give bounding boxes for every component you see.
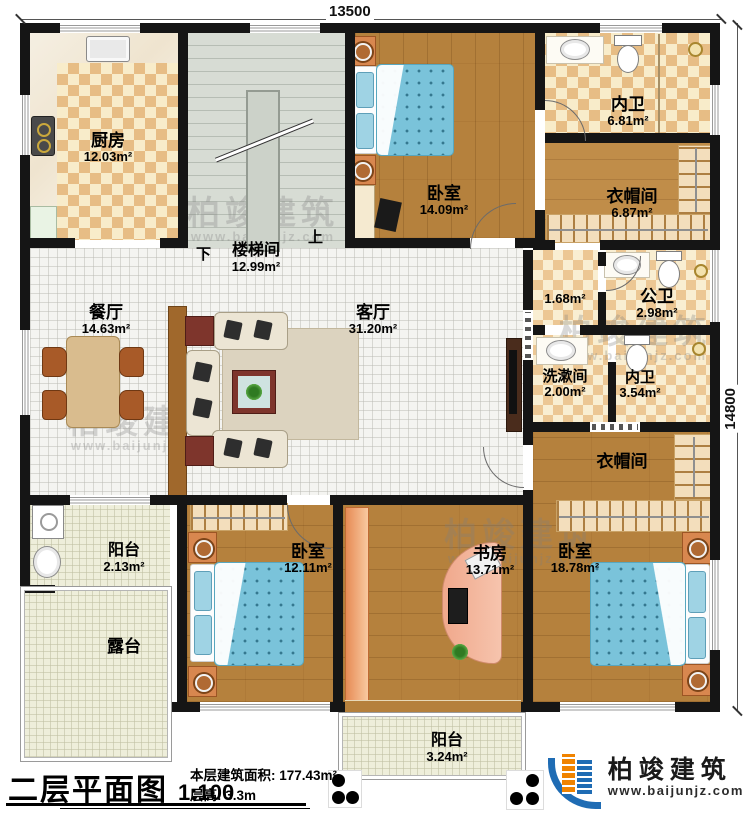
sink	[546, 340, 576, 361]
wardrobe-rack	[674, 434, 712, 500]
wall	[533, 422, 590, 432]
window	[250, 23, 320, 33]
shower-partition	[658, 34, 660, 133]
bed-headboard	[684, 564, 710, 664]
brand-logo-icon	[548, 752, 600, 804]
sofa	[212, 430, 288, 468]
sliding-door	[525, 312, 531, 358]
wall	[608, 362, 616, 422]
wall	[178, 33, 188, 248]
wall	[345, 238, 470, 248]
wall	[523, 360, 533, 445]
label-dining: 餐厅 14.63m²	[82, 304, 130, 337]
wall	[533, 240, 555, 250]
toilet-bowl	[617, 45, 639, 73]
wall	[177, 495, 187, 712]
label-bedroom-bl: 卧室 12.11m²	[284, 543, 332, 576]
wall	[598, 252, 606, 266]
dimension-line-right	[737, 23, 738, 712]
window	[20, 330, 30, 415]
chair	[42, 347, 67, 377]
wash-basin	[33, 546, 61, 578]
wall	[333, 505, 343, 712]
window	[600, 23, 662, 33]
tv	[509, 350, 517, 414]
stair-rail	[246, 90, 280, 252]
wall	[160, 238, 188, 248]
label-kitchen: 厨房 12.03m²	[84, 132, 132, 165]
bed-headboard	[190, 564, 216, 662]
window	[560, 702, 675, 712]
wardrobe-rack	[556, 500, 712, 532]
brand-logo: 柏竣建筑 www.baijunjz.com	[548, 752, 744, 804]
window	[710, 250, 720, 322]
nightstand	[188, 666, 217, 697]
label-bedroom-top: 卧室 14.09m²	[420, 185, 468, 218]
bookcase	[345, 507, 369, 704]
dimension-top-label: 13500	[326, 3, 374, 20]
plant	[452, 644, 468, 660]
window	[200, 702, 330, 712]
wall	[535, 33, 545, 110]
terrace-railing	[20, 586, 172, 762]
label-hall: 1.68m²	[544, 292, 585, 307]
shower-head	[692, 342, 706, 356]
label-living: 客厅 31.20m²	[349, 304, 397, 337]
label-study: 书房 13.71m²	[466, 545, 514, 578]
wardrobe-rack	[678, 145, 712, 215]
stove	[31, 116, 55, 156]
toilet-bowl	[658, 260, 680, 288]
wall	[640, 422, 710, 432]
label-bedroom-br: 卧室 18.78m²	[551, 543, 599, 576]
dining-table	[66, 336, 120, 428]
label-closet-bottom: 衣帽间	[597, 453, 648, 471]
nightstand	[682, 532, 712, 564]
label-terrace: 露台	[107, 638, 141, 656]
side-table	[185, 316, 214, 346]
wall	[523, 250, 533, 310]
label-stairs-down: 下	[196, 243, 211, 264]
floor-area-line: 本层建筑面积: 177.43m²	[190, 766, 337, 786]
window	[710, 560, 720, 650]
bed	[214, 562, 304, 666]
wall	[580, 325, 710, 335]
column-symbol	[506, 770, 544, 810]
shower-head	[694, 264, 708, 278]
wall	[30, 495, 70, 505]
monitor	[448, 588, 468, 624]
hall-floor	[533, 250, 598, 325]
nightstand	[682, 664, 712, 696]
label-stairs-up: 上	[308, 226, 323, 247]
brand-name: 柏竣建筑	[608, 758, 744, 783]
dimension-right-label: 14800	[722, 385, 739, 433]
wall	[20, 238, 75, 248]
coffee-table	[232, 370, 276, 414]
kitchen-sink	[86, 36, 130, 62]
label-public-bath: 公卫 2.98m²	[636, 288, 677, 321]
sliding-door	[592, 424, 638, 430]
fridge	[30, 206, 57, 242]
chair	[119, 390, 144, 420]
bed	[590, 562, 686, 666]
label-bath-mid: 内卫 3.54m²	[619, 370, 660, 401]
label-closet-top: 衣帽间 6.87m²	[607, 188, 658, 221]
chair	[119, 347, 144, 377]
window	[70, 495, 150, 505]
window	[20, 95, 30, 155]
wall	[533, 325, 545, 335]
label-stairwell: 楼梯间 12.99m²	[232, 243, 280, 275]
title-underline-thin	[60, 808, 310, 809]
wall	[330, 495, 523, 505]
window	[710, 85, 720, 135]
shower-head	[688, 42, 703, 57]
wall	[150, 495, 287, 505]
window	[60, 23, 140, 33]
chair	[42, 390, 67, 420]
label-bath-top: 内卫 6.81m²	[607, 96, 648, 129]
floor-height-line: 层高: 3.3m	[190, 786, 337, 806]
label-balcony-left: 阳台 2.13m²	[103, 543, 144, 575]
sofa	[186, 350, 220, 436]
wall	[345, 33, 355, 248]
nightstand	[188, 532, 217, 563]
bed-headboard	[352, 66, 378, 154]
sofa	[214, 312, 288, 350]
label-washroom: 洗漱间 2.00m²	[542, 369, 587, 400]
wardrobe-rack	[190, 503, 288, 531]
sink	[560, 39, 590, 60]
toilet-bowl	[626, 344, 648, 372]
label-balcony-bottom: 阳台 3.24m²	[426, 733, 467, 765]
plan-info: 本层建筑面积: 177.43m² 层高: 3.3m	[190, 766, 337, 807]
side-table	[185, 436, 214, 466]
bed	[376, 64, 454, 156]
washing-machine	[32, 505, 64, 539]
wall	[600, 240, 710, 250]
brand-site: www.baijunjz.com	[608, 783, 744, 798]
wall	[523, 490, 533, 712]
